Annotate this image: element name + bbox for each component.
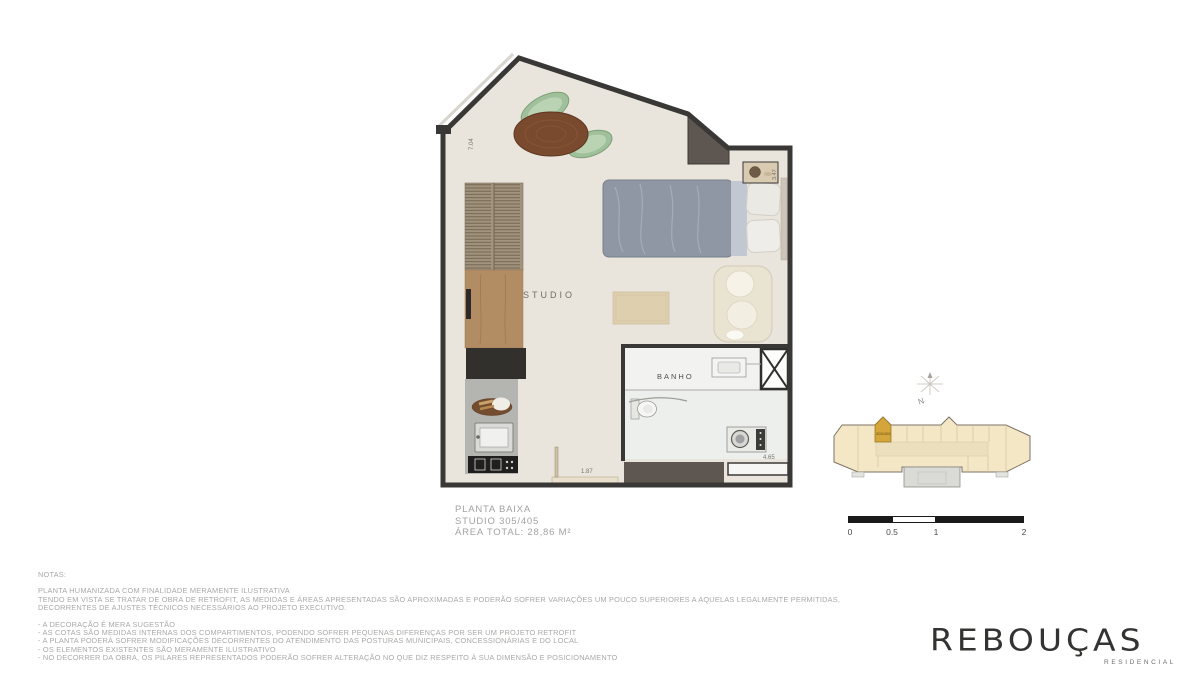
- wall-step: [436, 125, 451, 134]
- total-area: ÁREA TOTAL: 28,86 M²: [455, 527, 571, 539]
- keyplan-stub-right: [996, 472, 1008, 477]
- notes-heading: NOTAS:: [38, 571, 840, 579]
- scale-segment: [848, 516, 892, 523]
- dimension-shelf: 3.47: [772, 169, 778, 180]
- floorplan-page: STUDIO BANHO 7.04 3.47 1.87 4.65 N: [0, 0, 1200, 675]
- dish: [764, 172, 772, 176]
- highlighted-unit-label: 305/405: [876, 431, 891, 436]
- notes-bullet: - NO DECORRER DA OBRA, OS PILARES REPRES…: [38, 654, 840, 662]
- notes-line: DECORRENTES DE AJUSTES TÉCNICOS NECESSÁR…: [38, 604, 840, 612]
- duvet: [603, 180, 733, 257]
- scale-bar: 0 0.5 1 2: [848, 514, 1028, 540]
- unit-name: STUDIO 305/405: [455, 516, 571, 528]
- north-label: N: [917, 396, 925, 406]
- dimension-entry: 1.87: [581, 469, 593, 475]
- washing-machine: [727, 427, 766, 452]
- scale-label: 1: [934, 527, 939, 537]
- wood-cabinet: [465, 270, 523, 348]
- title-block: PLANTA BAIXA STUDIO 305/405 ÁREA TOTAL: …: [455, 504, 571, 539]
- sofa: [714, 266, 772, 342]
- notes-block: NOTAS: PLANTA HUMANIZADA COM FINALIDADE …: [38, 571, 840, 663]
- kitchen-counter: [466, 348, 526, 379]
- bathroom: [621, 346, 790, 461]
- kitchen-sink: [475, 423, 513, 452]
- round-table: [514, 112, 588, 156]
- entry-hall-block: [624, 462, 724, 484]
- scale-segment: [936, 516, 1024, 523]
- logo-name: REBOUÇAS: [930, 622, 1178, 658]
- key-plan: 305/405: [828, 412, 1040, 500]
- highlighted-unit: [875, 417, 891, 442]
- scale-label: 0: [848, 527, 853, 537]
- entry-step: [728, 463, 788, 475]
- room-label-studio: STUDIO: [523, 290, 575, 300]
- vase: [750, 167, 761, 178]
- kitchen-area: [465, 183, 526, 474]
- plan-title: PLANTA BAIXA: [455, 504, 571, 516]
- rug: [613, 292, 669, 324]
- logo-tagline: RESIDENCIAL: [930, 659, 1178, 666]
- north-arrow-icon: N: [905, 370, 955, 412]
- dimension-left-wall: 7.04: [469, 138, 475, 150]
- scale-label: 0.5: [886, 527, 898, 537]
- cabinet-handle: [466, 289, 471, 319]
- scale-label: 2: [1022, 527, 1027, 537]
- floorplan-drawing: STUDIO BANHO 7.04 3.47 1.87 4.65: [435, 52, 795, 492]
- dimension-bath: 4.65: [763, 455, 775, 461]
- door-leaf: [555, 447, 558, 477]
- scale-bar-segments: [848, 516, 1024, 523]
- pillow: [746, 182, 781, 216]
- headboard: [781, 178, 787, 260]
- scale-segment: [892, 516, 936, 523]
- folded-sheet: [731, 181, 747, 256]
- developer-logo: REBOUÇAS RESIDENCIAL: [930, 622, 1178, 666]
- corridor: [876, 442, 988, 456]
- room-label-banho: BANHO: [657, 372, 694, 381]
- keyplan-stub-left: [852, 472, 864, 477]
- pillow: [746, 219, 781, 253]
- ventilation-shaft: [761, 349, 788, 389]
- cooktop: [468, 456, 518, 473]
